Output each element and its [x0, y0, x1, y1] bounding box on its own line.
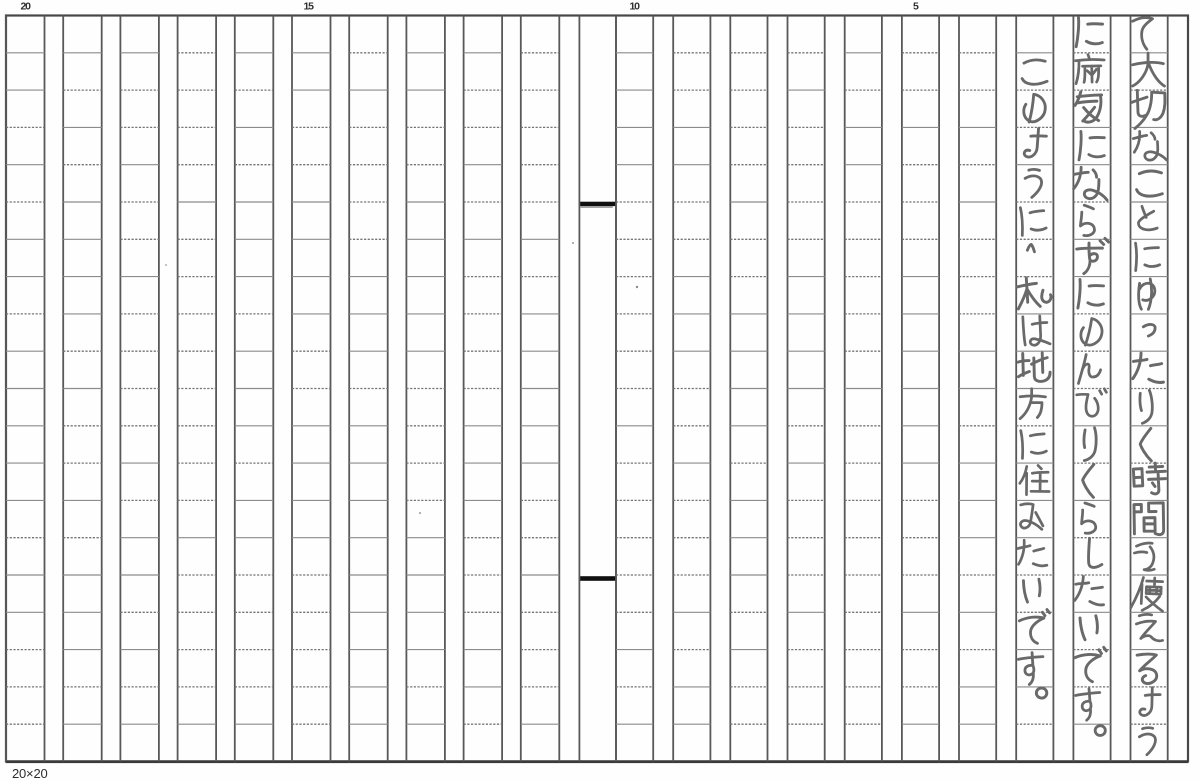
svg-text:15: 15: [304, 1, 315, 13]
svg-text:20: 20: [21, 1, 32, 13]
svg-text:10: 10: [630, 1, 641, 13]
svg-text:20×20: 20×20: [12, 766, 48, 781]
